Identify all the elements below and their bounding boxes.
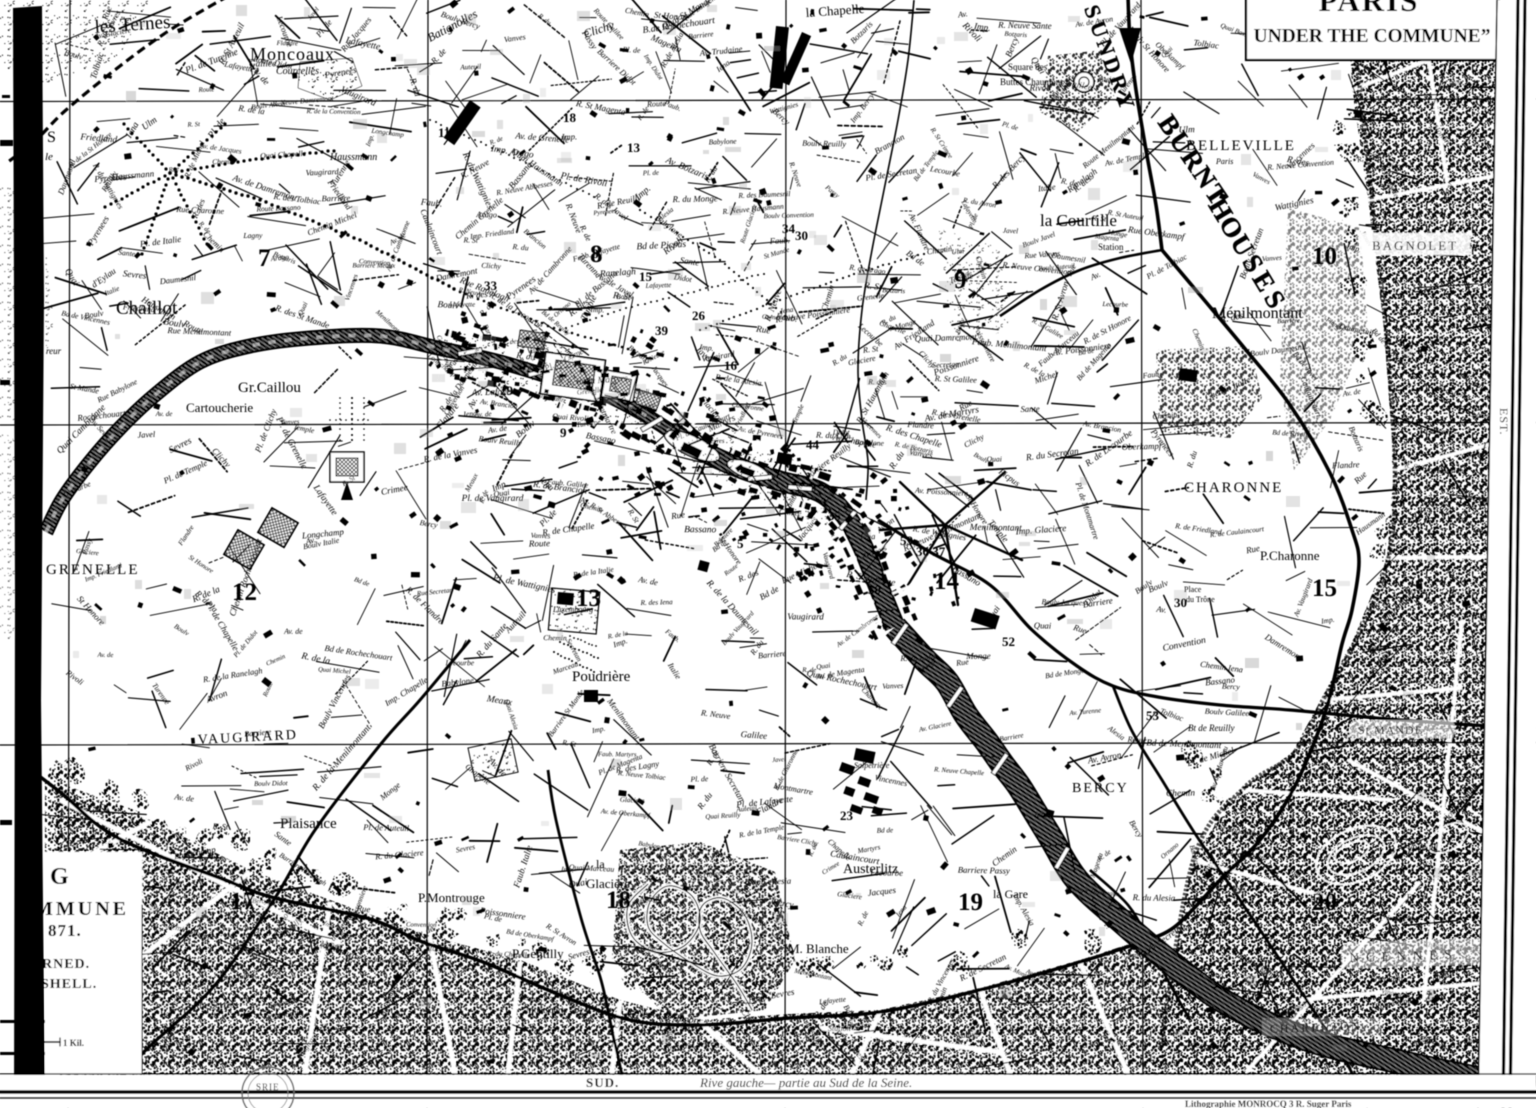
svg-text:Lecourbe: Lecourbe xyxy=(1101,301,1128,309)
svg-text:Haussmann: Haussmann xyxy=(329,152,377,163)
svg-text:14: 14 xyxy=(934,568,960,595)
svg-text:du Trône: du Trône xyxy=(1186,595,1215,604)
svg-text:R. de la Convention: R. de la Convention xyxy=(305,108,361,116)
svg-text:20: 20 xyxy=(1312,889,1337,916)
svg-text:R. du Monge: R. du Monge xyxy=(671,193,717,204)
svg-text:35: 35 xyxy=(828,508,842,523)
svg-text:D E: D E xyxy=(1406,892,1430,906)
svg-text:Gr.Caillou: Gr.Caillou xyxy=(238,380,301,396)
svg-text:R. de: R. de xyxy=(801,667,816,674)
svg-text:36 37: 36 37 xyxy=(916,544,946,559)
svg-text:53: 53 xyxy=(1146,708,1160,723)
svg-text:R. St: R. St xyxy=(186,121,200,129)
svg-text:Montsouris: Montsouris xyxy=(526,1005,568,1015)
svg-text:23: 23 xyxy=(840,808,854,823)
svg-text:S: S xyxy=(47,129,56,146)
svg-text:Poudrière: Poudrière xyxy=(572,669,631,685)
svg-text:Av.: Av. xyxy=(956,9,968,19)
svg-text:Imp.: Imp. xyxy=(560,131,577,141)
svg-text:7: 7 xyxy=(258,245,271,272)
svg-text:Av.: Av. xyxy=(651,962,663,973)
svg-text:Imp.: Imp. xyxy=(560,865,574,874)
svg-text:UNDER THE COMMUNE”: UNDER THE COMMUNE” xyxy=(1254,26,1491,47)
svg-text:PARIS: PARIS xyxy=(1319,0,1420,18)
svg-text:P.Charonne: P.Charonne xyxy=(1260,548,1320,563)
svg-text:Station: Station xyxy=(1098,242,1124,252)
svg-text:Bassano: Bassano xyxy=(684,525,717,535)
svg-text:R. du Alesia: R. du Alesia xyxy=(1132,892,1176,903)
svg-text:Rivoli: Rivoli xyxy=(632,389,650,396)
svg-text:GRENELLE: GRENELLE xyxy=(46,562,139,578)
svg-text:Ménilmontant: Ménilmontant xyxy=(1212,305,1303,322)
svg-text:Quai: Quai xyxy=(987,454,1002,463)
svg-text:Courcelles: Courcelles xyxy=(276,66,319,77)
svg-text:Route: Route xyxy=(646,99,667,109)
svg-text:R. du: R. du xyxy=(511,242,529,253)
svg-text:Cartoucherie: Cartoucherie xyxy=(186,400,253,415)
svg-text:M. Blanche: M. Blanche xyxy=(788,941,849,956)
svg-text:Station: Station xyxy=(828,1024,851,1033)
svg-text:Quai: Quai xyxy=(1034,620,1052,630)
svg-text:Boulv Jacques: Boulv Jacques xyxy=(1041,597,1085,607)
svg-text:Lagny: Lagny xyxy=(242,231,263,240)
svg-text:reur: reur xyxy=(46,346,62,356)
svg-text:Quai: Quai xyxy=(1464,1035,1481,1045)
svg-text:15: 15 xyxy=(1312,575,1337,602)
svg-text:Barriere Meaux: Barriere Meaux xyxy=(352,262,395,269)
svg-text:10: 10 xyxy=(1312,243,1337,270)
svg-text:Boulv Reuilly: Boulv Reuilly xyxy=(802,139,846,149)
svg-text:R. des: R. des xyxy=(639,944,658,952)
svg-text:Faub. Martyrs: Faub. Martyrs xyxy=(597,751,637,758)
svg-text:Vaugirard: Vaugirard xyxy=(305,167,339,177)
svg-text:Sante: Sante xyxy=(1020,404,1039,414)
svg-text:Babylone: Babylone xyxy=(708,136,737,146)
svg-text:la Gare: la Gare xyxy=(993,887,1028,901)
svg-text:15: 15 xyxy=(639,269,653,284)
svg-text:Pl. de: Pl. de xyxy=(621,45,641,55)
svg-text:26: 26 xyxy=(692,308,706,323)
svg-text:59: 59 xyxy=(900,533,914,548)
svg-text:R. Neuve Sante: R. Neuve Sante xyxy=(997,20,1052,31)
svg-text:9: 9 xyxy=(560,425,567,440)
svg-text:12: 12 xyxy=(232,579,257,606)
svg-text:Glacière: Glacière xyxy=(586,876,630,891)
svg-text:Iena: Iena xyxy=(462,409,477,419)
svg-text:Lecourbe: Lecourbe xyxy=(444,658,474,667)
svg-text:Paris: Paris xyxy=(1215,157,1233,166)
svg-text:Pl. de Vaugirard: Pl. de Vaugirard xyxy=(461,494,524,504)
svg-text:R. St: R. St xyxy=(211,822,229,832)
svg-text:BERCY: BERCY xyxy=(1072,781,1129,796)
svg-text:Glaciere: Glaciere xyxy=(620,796,645,805)
svg-text:Pl. de: Pl. de xyxy=(642,170,659,177)
svg-text:Luxembourg: Luxembourg xyxy=(552,605,593,614)
svg-text:Sevres: Sevres xyxy=(707,438,724,445)
svg-text:Pl. de: Pl. de xyxy=(689,774,709,784)
svg-text:P.Montrouge: P.Montrouge xyxy=(418,890,485,905)
svg-text:Vanves: Vanves xyxy=(882,681,903,691)
svg-text:SRIE: SRIE xyxy=(256,1082,280,1092)
svg-text:39: 39 xyxy=(655,323,669,338)
svg-text:Av. de: Av. de xyxy=(283,627,303,636)
svg-text:52: 52 xyxy=(1002,634,1015,649)
svg-text:Chaillot: Chaillot xyxy=(116,298,178,319)
svg-text:Chemin: Chemin xyxy=(1166,789,1195,800)
svg-text:BAGNOLET: BAGNOLET xyxy=(1372,238,1458,253)
svg-text:Route: Route xyxy=(1126,735,1147,745)
svg-text:St MANDE: St MANDE xyxy=(1358,723,1423,737)
svg-text:29: 29 xyxy=(500,383,514,398)
svg-text:Vanves: Vanves xyxy=(280,419,299,427)
svg-text:Pl. de Auteuil: Pl. de Auteuil xyxy=(362,823,410,833)
svg-text:Botzaris: Botzaris xyxy=(882,287,906,295)
svg-text:Imp.: Imp. xyxy=(589,305,604,314)
svg-text:Av.: Av. xyxy=(579,495,591,506)
svg-text:Buttes Chaumont: Buttes Chaumont xyxy=(1000,77,1063,87)
svg-text:MMUNE: MMUNE xyxy=(34,898,129,920)
svg-text:P.Gentilly: P.Gentilly xyxy=(512,946,564,961)
svg-text:Rive gauche— partie au Sud de: Rive gauche— partie au Sud de la Seine. xyxy=(699,1075,912,1090)
svg-text:Vaugirard: Vaugirard xyxy=(787,611,824,621)
svg-text:871.: 871. xyxy=(48,921,82,940)
svg-text:EST.: EST. xyxy=(1497,408,1511,435)
svg-text:17: 17 xyxy=(230,888,255,915)
svg-text:Av.: Av. xyxy=(1155,605,1167,615)
svg-text:8: 8 xyxy=(590,241,603,268)
svg-text:Route: Route xyxy=(528,538,550,548)
svg-text:R. de: R. de xyxy=(1374,600,1392,611)
svg-text:19: 19 xyxy=(958,889,983,916)
svg-text:Av. de: Av. de xyxy=(96,652,113,659)
svg-text:Place: Place xyxy=(1184,585,1202,594)
svg-text:34: 34 xyxy=(782,221,796,236)
svg-text:Bd de: Bd de xyxy=(877,826,894,835)
svg-text:Javel: Javel xyxy=(137,430,156,440)
svg-text:Chemin: Chemin xyxy=(543,633,567,642)
svg-text:Vanves: Vanves xyxy=(957,1029,980,1040)
svg-text:Iena: Iena xyxy=(859,531,876,542)
svg-text:Av.: Av. xyxy=(474,1017,484,1025)
svg-text:Faub.: Faub. xyxy=(768,235,790,246)
svg-text:Lithographie MONROCQ 3 R. Suge: Lithographie MONROCQ 3 R. Suger Paris xyxy=(1185,1099,1352,1108)
svg-text:RNED.: RNED. xyxy=(42,957,90,972)
svg-text:Lafayette: Lafayette xyxy=(448,301,475,308)
svg-text:Square des: Square des xyxy=(1008,62,1048,72)
svg-text:9: 9 xyxy=(954,267,967,294)
svg-text:Austerlitz: Austerlitz xyxy=(843,862,898,877)
svg-text:Friedland: Friedland xyxy=(1436,466,1467,475)
svg-text:Friedland: Friedland xyxy=(1369,974,1404,983)
svg-text:Route: Route xyxy=(197,86,214,94)
svg-text:Salpêtrière: Salpêtrière xyxy=(854,761,890,770)
svg-text:Ulm: Ulm xyxy=(951,247,964,256)
svg-text:R. St Galilee: R. St Galilee xyxy=(934,374,978,385)
svg-text:18: 18 xyxy=(606,887,631,914)
svg-text:Didot: Didot xyxy=(832,427,851,436)
svg-text:Plaisance: Plaisance xyxy=(280,816,337,832)
svg-text:Chemin: Chemin xyxy=(212,158,235,166)
svg-text:50: 50 xyxy=(868,582,881,597)
svg-text:Javel: Javel xyxy=(1003,227,1019,236)
svg-text:Didot: Didot xyxy=(1385,161,1404,171)
svg-text:44: 44 xyxy=(806,437,820,452)
svg-text:Boulv Didot: Boulv Didot xyxy=(254,780,289,788)
svg-text:SUD.: SUD. xyxy=(586,1075,619,1090)
svg-text:Rue Sevres: Rue Sevres xyxy=(193,1000,235,1012)
svg-text:30: 30 xyxy=(795,228,808,243)
svg-text:18: 18 xyxy=(563,110,577,125)
svg-text:la Courtille: la Courtille xyxy=(1040,211,1117,230)
svg-text:Monge: Monge xyxy=(965,651,991,661)
svg-text:13: 13 xyxy=(627,140,641,155)
svg-text:1 Kil.: 1 Kil. xyxy=(63,1038,84,1048)
svg-text:Bt de Reuilly: Bt de Reuilly xyxy=(1188,723,1234,733)
svg-text:Auteuil: Auteuil xyxy=(459,63,481,72)
svg-text:Rue: Rue xyxy=(670,509,686,521)
svg-text:5: 5 xyxy=(737,536,744,551)
svg-text:Boulv Convention: Boulv Convention xyxy=(763,211,814,221)
svg-text:Galilee: Galilee xyxy=(740,729,767,741)
svg-text:R. St: R. St xyxy=(462,235,478,244)
svg-text:R. des Iena: R. des Iena xyxy=(639,598,673,607)
svg-text:CHARONNE: CHARONNE xyxy=(1184,480,1283,496)
svg-text:Barriere Passy: Barriere Passy xyxy=(958,865,1010,876)
svg-text:SHELL.: SHELL. xyxy=(41,977,97,992)
svg-text:16: 16 xyxy=(724,358,738,373)
svg-text:G: G xyxy=(50,864,69,890)
svg-text:Iena: Iena xyxy=(1033,810,1049,819)
svg-text:11: 11 xyxy=(438,125,450,140)
svg-text:la: la xyxy=(596,857,605,871)
svg-text:Av. de: Av. de xyxy=(155,410,173,418)
svg-text:33: 33 xyxy=(484,278,498,293)
svg-text:le: le xyxy=(45,151,53,163)
svg-text:Lafayette: Lafayette xyxy=(1386,913,1415,923)
svg-text:Stations: Stations xyxy=(426,944,452,953)
svg-text:Flandre: Flandre xyxy=(1331,459,1360,470)
svg-text:Clichy: Clichy xyxy=(481,261,502,271)
svg-text:Moncoaux: Moncoaux xyxy=(250,44,335,64)
